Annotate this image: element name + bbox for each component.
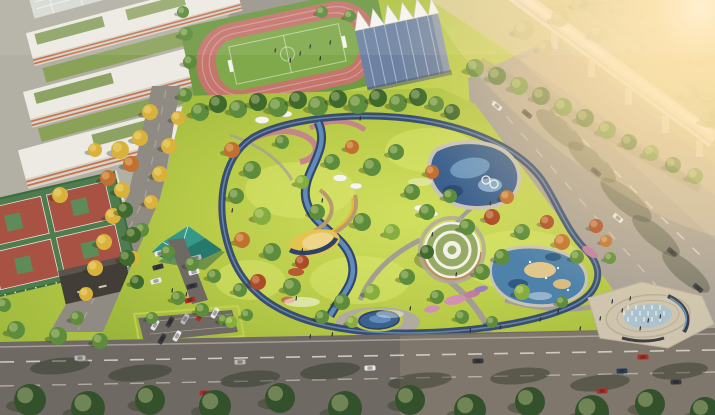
person bbox=[558, 310, 559, 313]
person bbox=[332, 333, 333, 336]
person bbox=[500, 326, 501, 329]
person bbox=[186, 293, 187, 296]
person bbox=[622, 309, 623, 312]
person bbox=[322, 199, 323, 202]
person bbox=[456, 273, 457, 276]
person bbox=[660, 315, 661, 318]
car bbox=[670, 379, 681, 384]
person bbox=[290, 59, 291, 62]
car bbox=[364, 365, 375, 370]
car bbox=[472, 358, 483, 363]
person bbox=[296, 297, 297, 300]
person bbox=[540, 318, 541, 321]
person bbox=[410, 307, 411, 310]
person bbox=[302, 249, 303, 252]
top-veil bbox=[0, 0, 715, 55]
person bbox=[310, 335, 311, 338]
person bbox=[600, 317, 601, 320]
aerial-park-rendering bbox=[0, 0, 715, 415]
person bbox=[172, 289, 173, 292]
person bbox=[648, 319, 649, 322]
car bbox=[74, 355, 85, 360]
person bbox=[320, 57, 321, 60]
car bbox=[234, 359, 245, 364]
car bbox=[637, 354, 648, 359]
car bbox=[596, 388, 607, 393]
person bbox=[232, 209, 233, 212]
rendering-svg bbox=[0, 0, 715, 415]
person bbox=[580, 327, 581, 330]
person bbox=[360, 117, 361, 120]
car bbox=[616, 368, 627, 373]
person bbox=[640, 327, 641, 330]
person bbox=[470, 329, 471, 332]
person bbox=[432, 233, 433, 236]
